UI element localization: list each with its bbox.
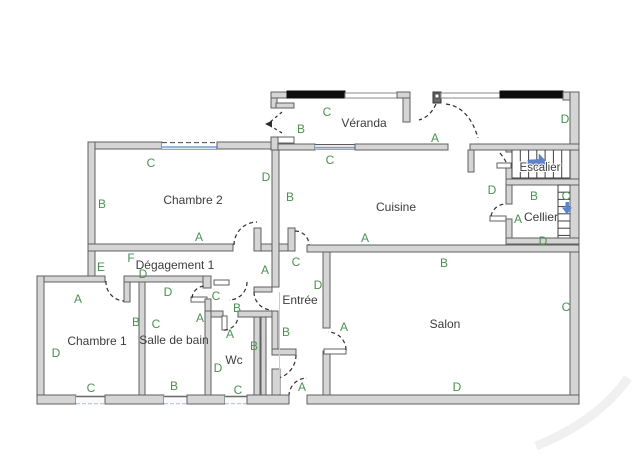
svg-text:D: D: [139, 267, 148, 281]
svg-text:D: D: [314, 278, 323, 292]
svg-text:B: B: [132, 315, 140, 329]
svg-text:C: C: [152, 317, 161, 331]
svg-text:B: B: [440, 256, 448, 270]
svg-text:C: C: [292, 255, 301, 269]
svg-text:C: C: [212, 289, 221, 303]
svg-text:Salon: Salon: [430, 317, 461, 331]
svg-text:C: C: [147, 156, 156, 170]
svg-text:D: D: [488, 183, 497, 197]
svg-text:C: C: [326, 153, 335, 167]
svg-text:Cellier: Cellier: [524, 210, 558, 224]
svg-text:B: B: [286, 190, 294, 204]
svg-text:B: B: [98, 197, 106, 211]
svg-text:A: A: [196, 311, 204, 325]
svg-text:D: D: [539, 234, 548, 248]
svg-text:Escalier: Escalier: [520, 162, 561, 174]
svg-text:B: B: [282, 325, 290, 339]
svg-text:B: B: [530, 189, 538, 203]
svg-text:D: D: [453, 380, 462, 394]
svg-text:C: C: [87, 381, 96, 395]
svg-text:A: A: [514, 212, 522, 226]
svg-text:A: A: [340, 320, 348, 334]
svg-text:Salle de bain: Salle de bain: [139, 333, 208, 347]
svg-text:B: B: [170, 379, 178, 393]
svg-text:Wc: Wc: [225, 353, 242, 367]
svg-text:Cuisine: Cuisine: [376, 200, 416, 214]
svg-text:Entrée: Entrée: [282, 293, 318, 307]
svg-text:A: A: [431, 131, 439, 145]
svg-text:A: A: [361, 231, 369, 245]
svg-text:D: D: [214, 361, 223, 375]
svg-text:F: F: [127, 251, 134, 265]
svg-text:D: D: [262, 170, 271, 184]
svg-text:A: A: [195, 230, 203, 244]
svg-text:B: B: [297, 122, 305, 136]
svg-text:C: C: [323, 105, 332, 119]
svg-text:A: A: [226, 327, 234, 341]
svg-text:D: D: [164, 285, 173, 299]
svg-text:A: A: [261, 263, 269, 277]
svg-text:B: B: [250, 339, 258, 353]
svg-text:D: D: [561, 112, 570, 126]
svg-text:D: D: [52, 346, 61, 360]
svg-text:A: A: [74, 292, 82, 306]
svg-text:Chambre 2: Chambre 2: [163, 193, 223, 207]
svg-text:Chambre 1: Chambre 1: [67, 334, 127, 348]
svg-text:C: C: [562, 300, 571, 314]
svg-text:A: A: [298, 380, 306, 394]
svg-text:C: C: [562, 189, 571, 203]
svg-text:B: B: [233, 301, 241, 315]
svg-text:C: C: [234, 383, 243, 397]
svg-text:Dégagement 1: Dégagement 1: [136, 258, 215, 272]
svg-text:Véranda: Véranda: [341, 116, 387, 130]
svg-text:E: E: [97, 260, 105, 274]
